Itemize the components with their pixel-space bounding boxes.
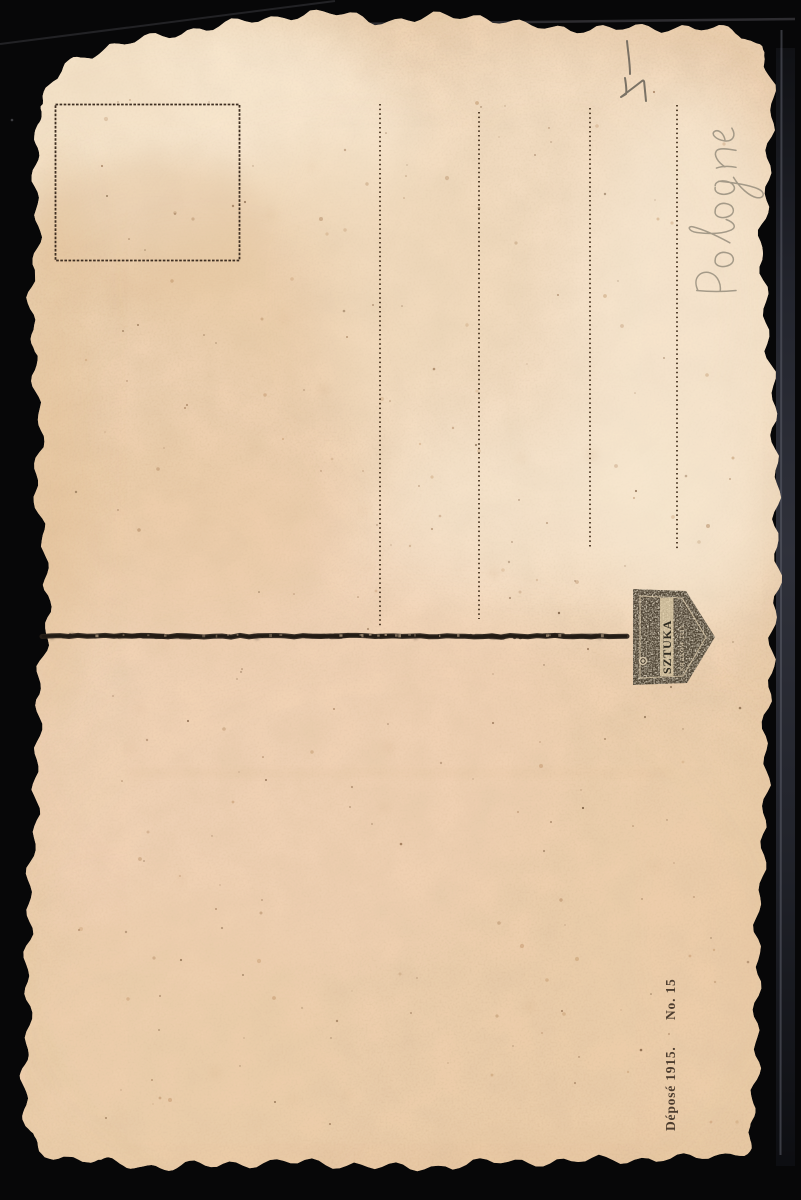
svg-text:No. 15: No. 15: [663, 978, 678, 1020]
svg-text:KRAKÓW 1915: KRAKÓW 1915: [678, 625, 686, 671]
svg-text:SZTUKA: SZTUKA: [660, 620, 674, 674]
svg-text:Déposé 1915.: Déposé 1915.: [663, 1046, 678, 1131]
